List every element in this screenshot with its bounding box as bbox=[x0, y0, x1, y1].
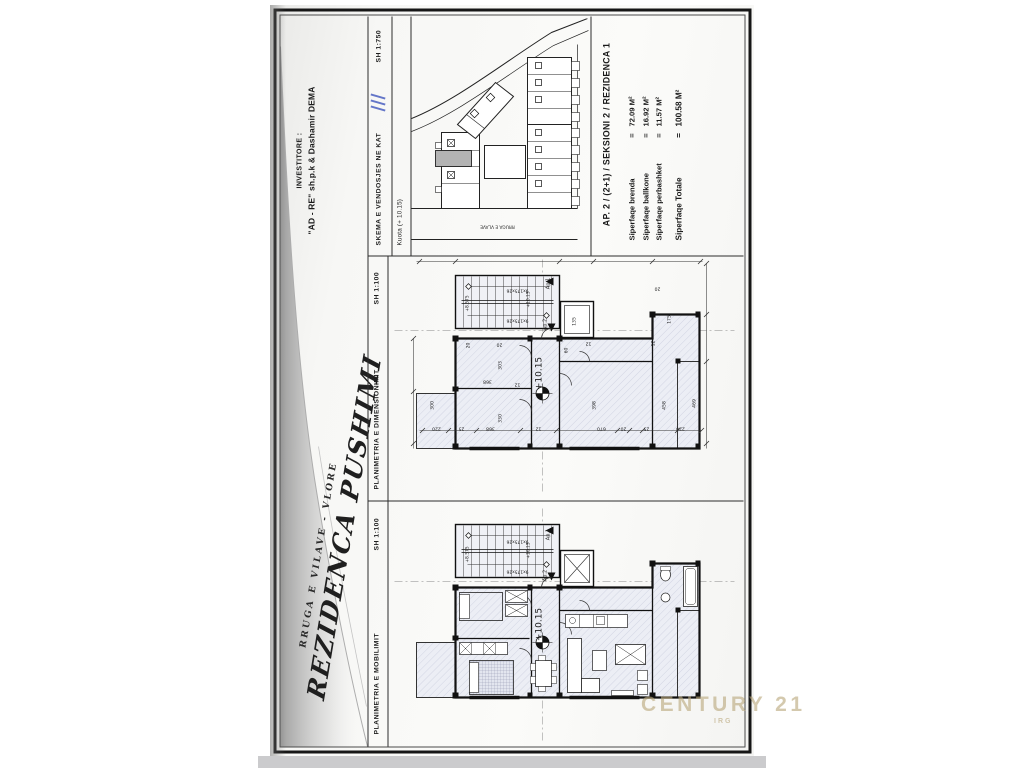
svg-text:303: 303 bbox=[497, 361, 503, 370]
dimension-plan-drawing: 9x175x269x175x26+8.575+10.15Ap.1Ap.2+10.… bbox=[394, 259, 734, 494]
svg-text:RRUGA E VLAVE: RRUGA E VLAVE bbox=[479, 223, 514, 229]
blue-pen-hatch-mark bbox=[370, 92, 386, 112]
scan-bottom-strip bbox=[258, 756, 766, 768]
svg-text:9x175x26: 9x175x26 bbox=[506, 287, 528, 293]
site-plan: RRUGA E VLAVE bbox=[411, 18, 588, 252]
panel-title-mobilimit: PLANIMETRIA E MOBILIMIT bbox=[373, 633, 380, 735]
svg-text:458: 458 bbox=[661, 401, 667, 410]
highlighted-unit-seksioni-2 bbox=[435, 150, 471, 166]
svg-text:20: 20 bbox=[465, 342, 471, 348]
info-divider bbox=[590, 16, 591, 256]
drawing-sheet: RRUGA E VILAVE - VLORE REZIDENCA PUSHIMI… bbox=[270, 5, 754, 756]
svg-text:25: 25 bbox=[643, 425, 649, 431]
bed-2 bbox=[469, 660, 513, 694]
title-band-divider bbox=[367, 16, 368, 746]
svg-text:368: 368 bbox=[486, 425, 495, 431]
svg-text:25: 25 bbox=[458, 425, 464, 431]
svg-text:+10.15: +10.15 bbox=[525, 542, 531, 558]
panel-scale-dimensionimit: SH 1:100 bbox=[373, 271, 380, 304]
svg-text:300: 300 bbox=[429, 401, 435, 410]
watermark-brand-text: CENTURY 21 bbox=[641, 693, 806, 717]
investor-name: "AD - RE" sh.p.k & Dashamir DEMA bbox=[306, 62, 316, 258]
investor-block: INVESTITORE : "AD - RE" sh.p.k & Dashami… bbox=[296, 62, 316, 258]
panel-title-dimensionimit: PLANIMETRIA E DIMENSIONIMIT bbox=[373, 369, 380, 489]
svg-text:9x175x26: 9x175x26 bbox=[506, 538, 528, 544]
header-underline-col3a bbox=[391, 16, 392, 256]
svg-text:330: 330 bbox=[497, 414, 503, 423]
sheet-rotated-content: RRUGA E VILAVE - VLORE REZIDENCA PUSHIMI… bbox=[270, 5, 754, 756]
svg-text:+10.15: +10.15 bbox=[534, 356, 544, 389]
svg-text:Ap.1: Ap.1 bbox=[545, 528, 551, 539]
area-row: Siperfaqe ballkone=16.92 M² bbox=[641, 20, 650, 240]
investor-label: INVESTITORE : bbox=[296, 62, 303, 258]
panel-scale-mobilimit: SH 1:100 bbox=[373, 517, 380, 550]
svg-text:Ap.1: Ap.1 bbox=[545, 277, 551, 288]
area-row: Siperfaqe perbashket=11.57 M² bbox=[654, 20, 663, 240]
century21-watermark: CENTURY 21 IRG bbox=[641, 693, 806, 725]
area-row: Siperfaqe brenda=72.09 M² bbox=[627, 20, 636, 240]
dimension-plan: 9x175x269x175x26+8.575+10.15Ap.1Ap.2+10.… bbox=[389, 253, 739, 499]
header-underline-col2 bbox=[387, 256, 388, 501]
svg-text:220: 220 bbox=[432, 425, 441, 431]
panel-scale-skema: SH 1:750 bbox=[375, 29, 382, 62]
svg-text:+8.575: +8.575 bbox=[464, 295, 470, 311]
svg-text:20: 20 bbox=[496, 341, 502, 347]
svg-text:20: 20 bbox=[620, 425, 626, 431]
svg-text:20: 20 bbox=[654, 285, 660, 291]
site-plan-drawing: RRUGA E VLAVE bbox=[411, 18, 588, 239]
svg-text:9x175x26: 9x175x26 bbox=[506, 568, 528, 574]
svg-text:12: 12 bbox=[514, 381, 520, 387]
area-row: Siperfaqe Totale=100.58 M² bbox=[674, 20, 683, 240]
wardrobe-2 bbox=[459, 642, 507, 654]
watermark-sub-text: IRG bbox=[641, 718, 806, 725]
scanned-drawing-page: RRUGA E VILAVE - VLORE REZIDENCA PUSHIMI… bbox=[0, 0, 1024, 768]
svg-text:Ap.2: Ap.2 bbox=[542, 569, 548, 580]
svg-text:12: 12 bbox=[585, 340, 591, 346]
site-plan-labels: RRUGA E VLAVE bbox=[479, 223, 514, 229]
area-table: Siperfaqe brenda=72.09 M²Siperfaqe ballk… bbox=[627, 20, 688, 240]
svg-text:398: 398 bbox=[591, 401, 597, 410]
svg-text:+8.575: +8.575 bbox=[464, 546, 470, 562]
svg-text:368: 368 bbox=[483, 378, 492, 384]
svg-text:12: 12 bbox=[650, 340, 656, 346]
apartment-info-title: AP. 2 / (2+1) / SEKSIONI 2 / REZIDENCA 1 bbox=[601, 16, 611, 252]
column-divider-1 bbox=[367, 500, 743, 501]
kitchen-counter bbox=[565, 614, 627, 627]
courtyard bbox=[484, 145, 525, 178]
svg-text:12: 12 bbox=[535, 425, 541, 431]
svg-text:Ap.2: Ap.2 bbox=[542, 318, 548, 329]
svg-text:220: 220 bbox=[676, 425, 685, 431]
svg-text:670: 670 bbox=[597, 425, 606, 431]
elevator bbox=[560, 550, 593, 586]
header-underline-col1 bbox=[387, 501, 388, 746]
buildings bbox=[441, 57, 571, 208]
svg-text:60: 60 bbox=[563, 347, 569, 353]
bed-1 bbox=[459, 592, 502, 620]
svg-text:175: 175 bbox=[666, 315, 672, 324]
svg-text:469: 469 bbox=[691, 399, 697, 408]
svg-text:135: 135 bbox=[571, 317, 577, 326]
svg-text:+10.15: +10.15 bbox=[525, 291, 531, 307]
svg-text:+10.15: +10.15 bbox=[534, 607, 544, 640]
panel-title-skema: SKEMA E VENDOSJES NE KAT bbox=[375, 132, 382, 245]
svg-text:9x175x26: 9x175x26 bbox=[506, 317, 528, 323]
panel-kuota-note: Kuota (+ 10.15) bbox=[396, 198, 403, 245]
scan-edge-shadow bbox=[270, 5, 286, 756]
